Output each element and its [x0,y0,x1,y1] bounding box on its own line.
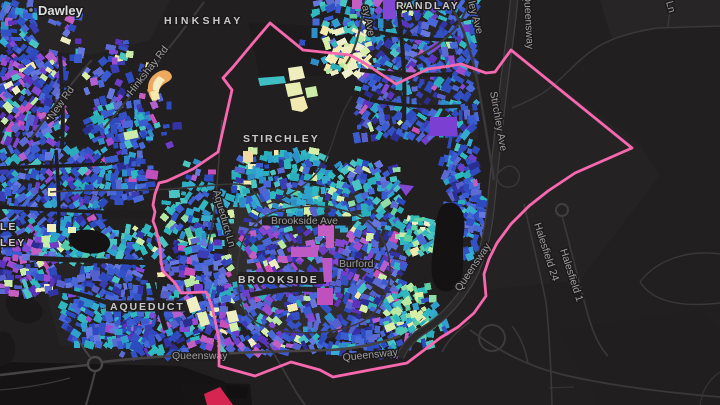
svg-text:Burford: Burford [339,258,374,270]
svg-text:Brookside Ave: Brookside Ave [271,215,338,227]
svg-text:STIRCHLEY: STIRCHLEY [243,133,320,145]
svg-text:HINKSHAY: HINKSHAY [164,15,243,27]
svg-text:Dawley: Dawley [38,3,84,18]
svg-text:BROOKSIDE: BROOKSIDE [238,274,319,286]
svg-text:LE: LE [0,221,17,233]
svg-text:LEY: LEY [0,237,26,249]
svg-text:RANDLAY: RANDLAY [396,0,460,12]
svg-text:AQUEDUCT: AQUEDUCT [110,301,185,313]
